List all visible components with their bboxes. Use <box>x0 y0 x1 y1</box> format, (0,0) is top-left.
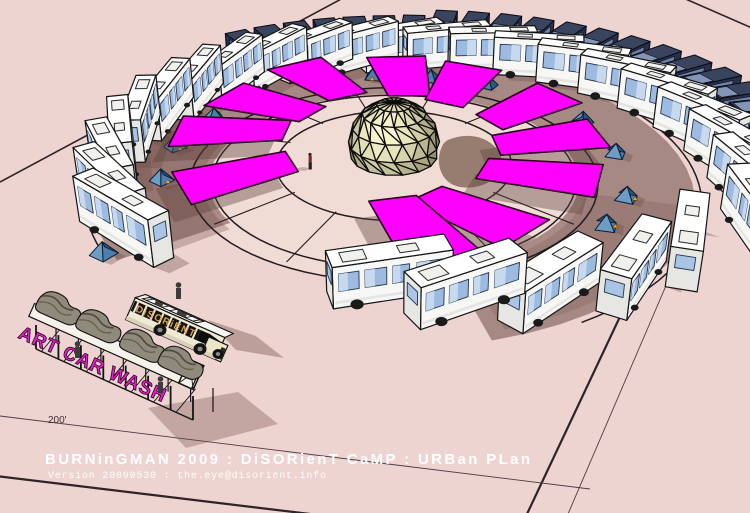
svg-text:BURNinGMAN 2009 : DiSORienT Ca: BURNinGMAN 2009 : DiSORienT CaMP : URBan… <box>45 451 531 468</box>
svg-text:200': 200' <box>48 415 67 426</box>
svg-text:Version 20090530 : the.eye@dis: Version 20090530 : the.eye@disorient.inf… <box>48 470 327 482</box>
